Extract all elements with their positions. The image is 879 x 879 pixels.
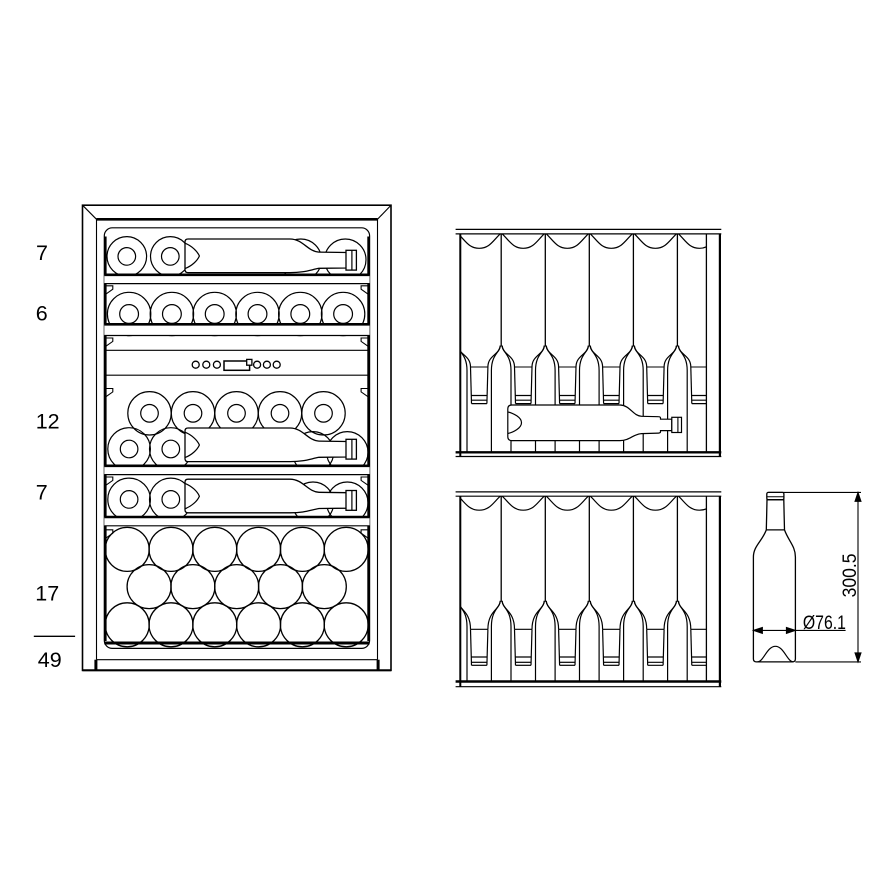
svg-text:7: 7 [36,241,48,265]
svg-text:300.5: 300.5 [839,553,861,597]
svg-text:12: 12 [36,409,60,433]
svg-text:6: 6 [36,302,48,326]
svg-text:Ø76.1: Ø76.1 [803,612,846,634]
svg-text:49: 49 [38,648,62,672]
svg-text:17: 17 [35,582,59,606]
svg-text:7: 7 [36,480,48,504]
